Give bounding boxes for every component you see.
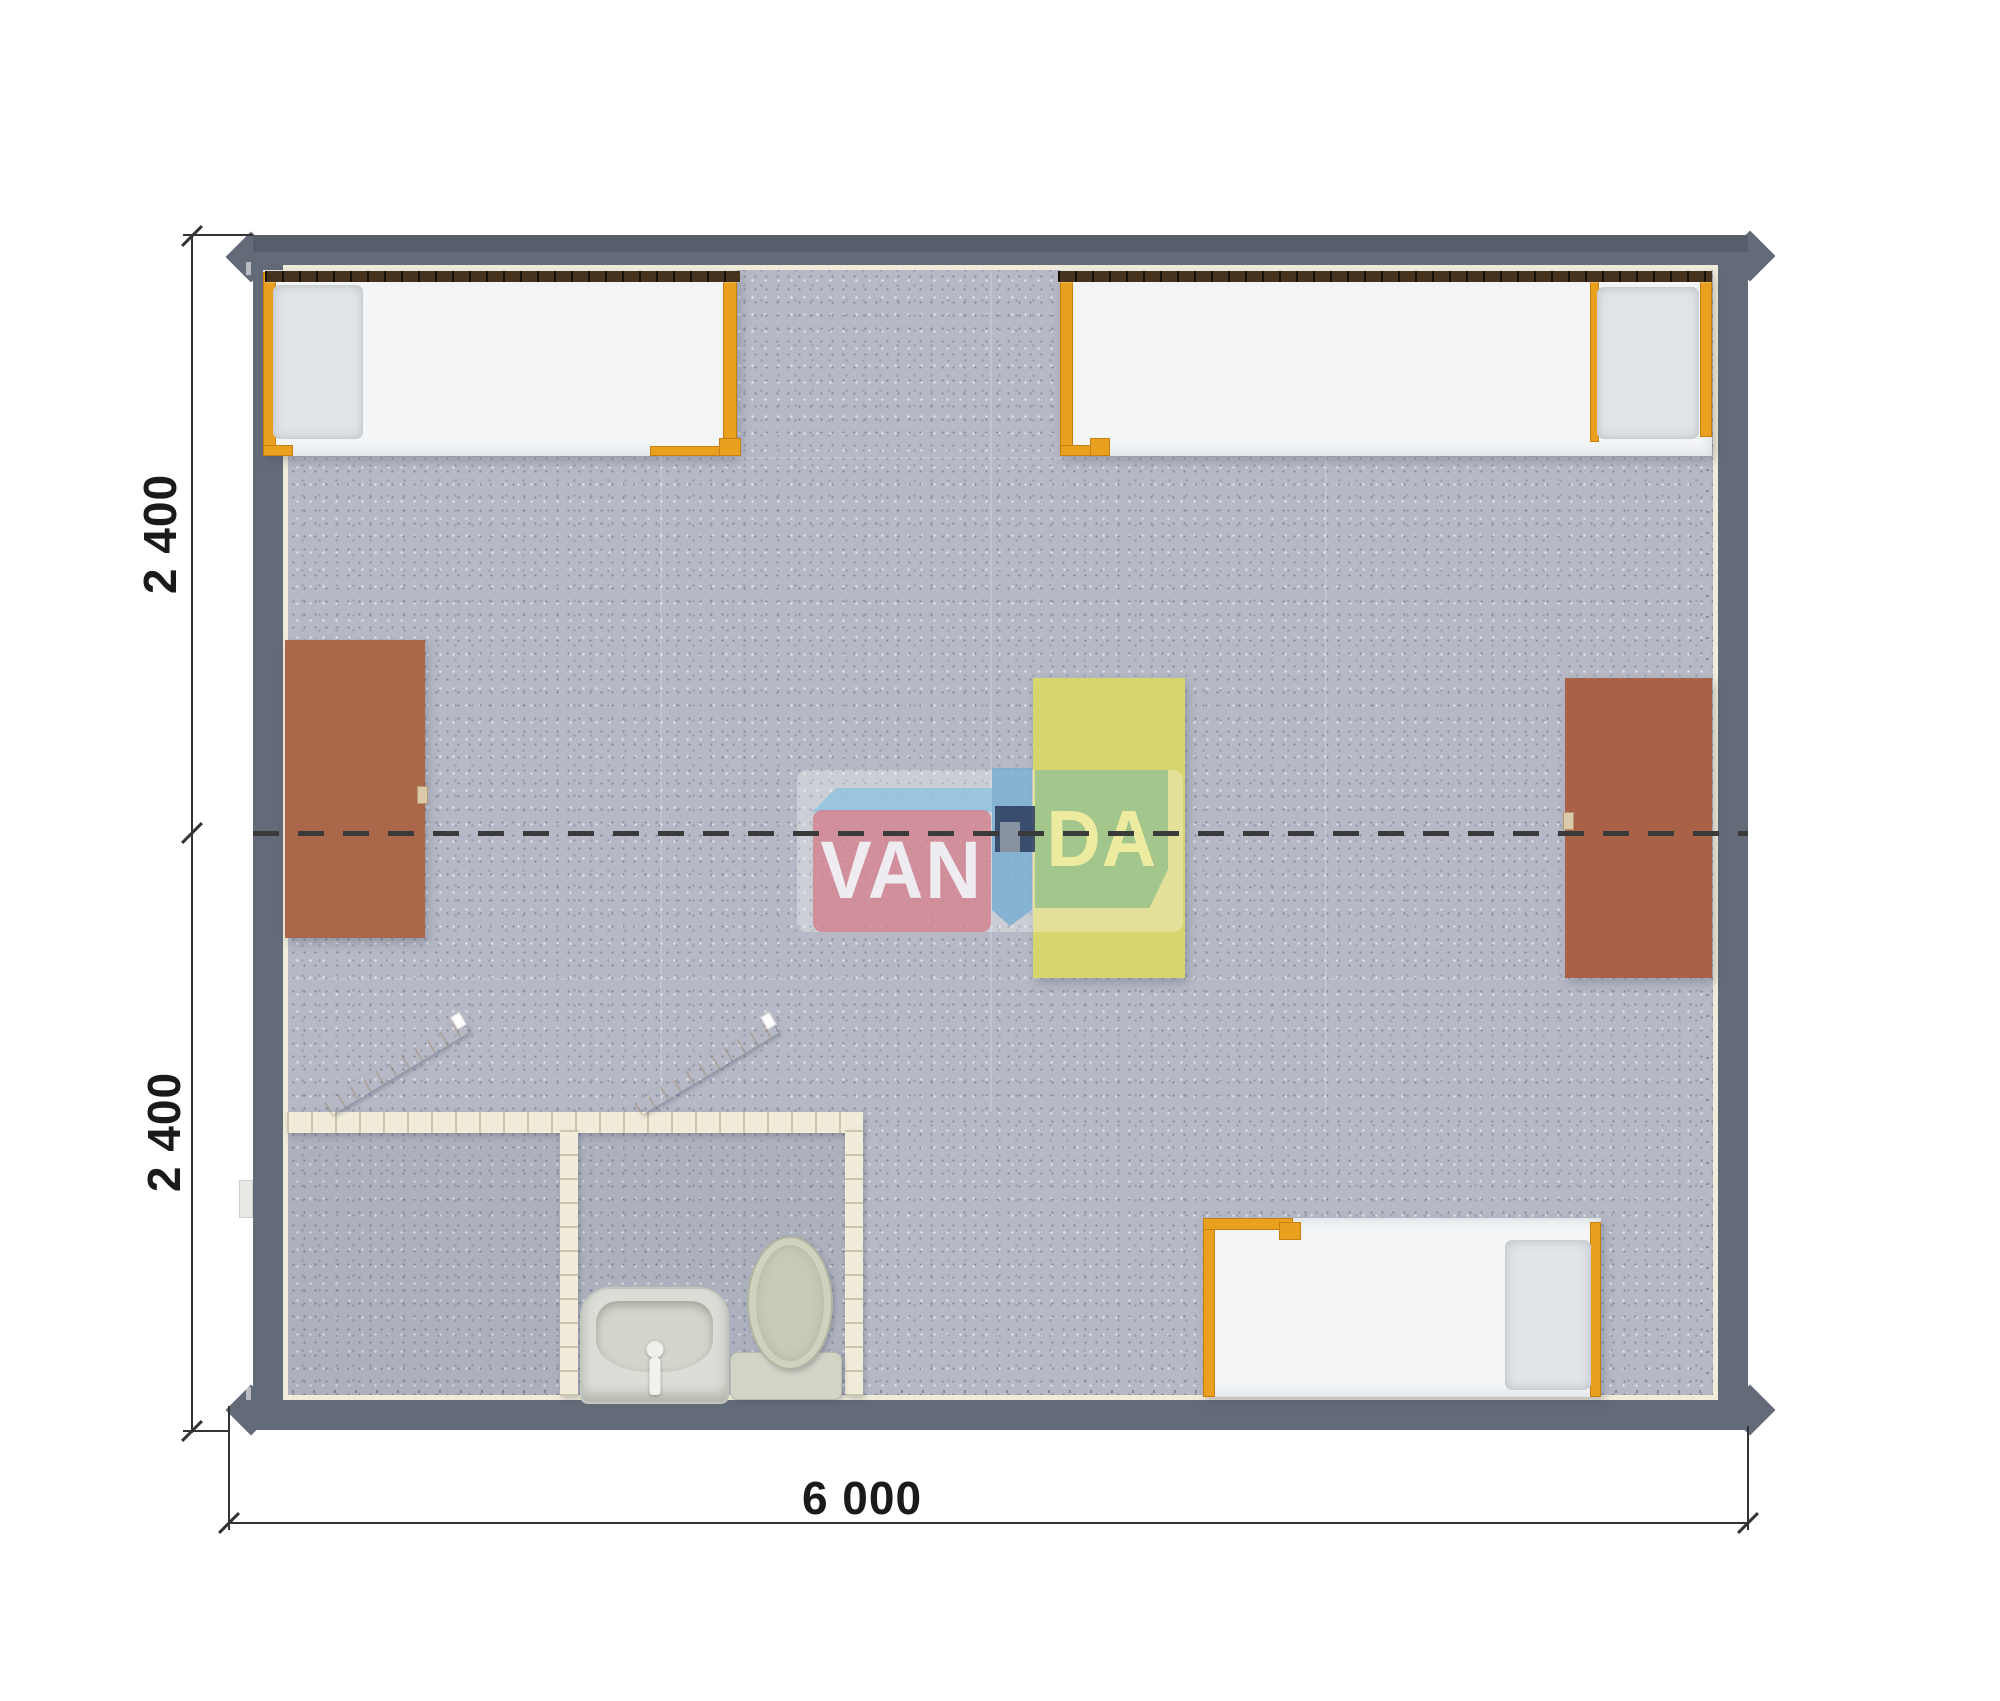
desk-left [285, 640, 425, 938]
desk-knob [1563, 812, 1574, 830]
heater-strip-right [1058, 271, 1712, 282]
bed-top-right [1060, 270, 1712, 456]
dimension-label-left-bottom: 2 400 [137, 1072, 191, 1192]
desk-knob [417, 786, 428, 804]
carpet-seam [290, 457, 1710, 459]
left-wall-corrugation [246, 262, 251, 1412]
extension-line-right [1747, 1426, 1749, 1530]
pillow [1597, 287, 1699, 439]
extension-line-left [228, 1406, 230, 1530]
washbasin [580, 1287, 729, 1404]
bed-rail [1060, 272, 1073, 456]
bathroom-wall-right [845, 1130, 863, 1396]
bed-rail-knob [719, 438, 741, 456]
bed-rail-knob [1279, 1222, 1301, 1240]
watermark-da-text: DA [1046, 793, 1156, 885]
dimension-label-left-top: 2 400 [133, 474, 187, 594]
pillow [1505, 1240, 1591, 1390]
watermark-navy-block [995, 806, 1035, 852]
bed-rail [723, 272, 737, 456]
bed-top-left [263, 270, 737, 456]
bed-rail [263, 445, 293, 456]
bathroom-wall-divider [560, 1130, 578, 1396]
pillow [273, 285, 363, 439]
desk-right [1565, 678, 1712, 978]
watermark-navy-inner [1000, 822, 1020, 852]
bed-rail [1700, 277, 1712, 437]
bed-rail-knob [1090, 438, 1110, 456]
bed-rail [1203, 1220, 1215, 1397]
toilet-lid [747, 1236, 833, 1370]
carpet-seam [990, 272, 992, 1112]
watermark-da-badge: DA [1035, 770, 1168, 908]
toilet [728, 1236, 842, 1400]
watermark-van-text: VAN [821, 824, 984, 918]
faucet-knob [646, 1341, 663, 1358]
heater-strip-left [265, 271, 740, 282]
dimension-line-horizontal [228, 1522, 1749, 1524]
shower-room-floor [288, 1133, 560, 1395]
exterior-vent [239, 1180, 253, 1218]
bed-bottom-right [1203, 1218, 1601, 1397]
carpet-seam [290, 978, 1710, 980]
center-axis-line [253, 831, 1748, 836]
faucet [649, 1357, 660, 1395]
watermark-van-badge: VAN [813, 810, 991, 932]
dimension-label-bottom: 6 000 [802, 1471, 922, 1525]
bed-rail [1590, 1222, 1601, 1397]
